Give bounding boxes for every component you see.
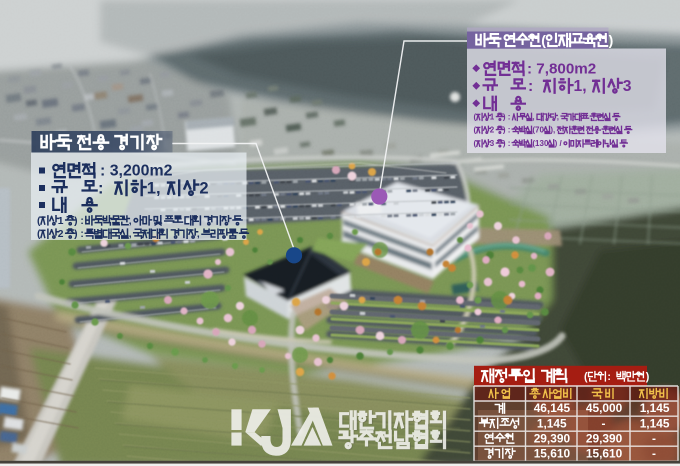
svg-text:(: ( [474, 126, 477, 135]
svg-text:(: ( [474, 139, 477, 148]
svg-text:-: - [652, 446, 656, 460]
svg-text:1,145: 1,145 [537, 416, 567, 430]
svg-text:(130: (130 [532, 139, 549, 148]
svg-text:(: ( [474, 113, 477, 122]
svg-text:29,390: 29,390 [534, 431, 571, 445]
svg-text:),: ), [550, 126, 555, 135]
svg-text:2: 2 [199, 179, 208, 197]
svg-text:3: 3 [623, 78, 632, 95]
svg-text:3: 3 [490, 139, 495, 148]
svg-text:,: , [557, 113, 559, 122]
svg-text::: : [607, 371, 611, 383]
svg-text:(: ( [37, 229, 41, 240]
svg-text:1,: 1, [147, 179, 161, 197]
svg-text:45,000: 45,000 [586, 401, 623, 415]
svg-text:1,145: 1,145 [640, 416, 670, 430]
svg-text:2: 2 [58, 229, 64, 240]
svg-text:): ) [609, 32, 614, 48]
svg-text:1: 1 [58, 216, 64, 227]
svg-text:-: - [602, 416, 606, 430]
svg-text:,: , [197, 229, 200, 240]
svg-text:): ) [646, 371, 650, 383]
svg-text:1: 1 [490, 113, 495, 122]
svg-text:15,610: 15,610 [534, 446, 571, 460]
svg-text:,: , [532, 113, 534, 122]
svg-text:: 3,200m2: : 3,200m2 [100, 163, 173, 180]
svg-text:(70: (70 [532, 126, 544, 135]
svg-text::: : [98, 179, 104, 197]
svg-text:) :: ) : [74, 229, 84, 240]
svg-text:(: ( [541, 32, 546, 48]
svg-text:) :: ) : [74, 216, 84, 227]
svg-text:) /: ) / [555, 139, 563, 148]
svg-text:) :: ) : [503, 113, 511, 122]
svg-text:-: - [652, 431, 656, 445]
svg-text:2: 2 [490, 126, 495, 135]
svg-text:,: , [129, 216, 132, 227]
svg-text:) :: ) : [503, 139, 511, 148]
svg-text:(: ( [584, 371, 588, 383]
svg-text:15,610: 15,610 [586, 446, 623, 460]
svg-text:1,145: 1,145 [640, 401, 670, 415]
svg-text::: : [528, 78, 533, 95]
svg-text:1,: 1, [574, 78, 587, 95]
svg-text:(: ( [37, 216, 41, 227]
svg-text:: 7,800m2: : 7,800m2 [527, 61, 596, 78]
svg-text:,: , [129, 229, 132, 240]
svg-text:29,390: 29,390 [586, 431, 623, 445]
svg-text:46,145: 46,145 [534, 401, 571, 415]
svg-text:) :: ) : [503, 126, 511, 135]
